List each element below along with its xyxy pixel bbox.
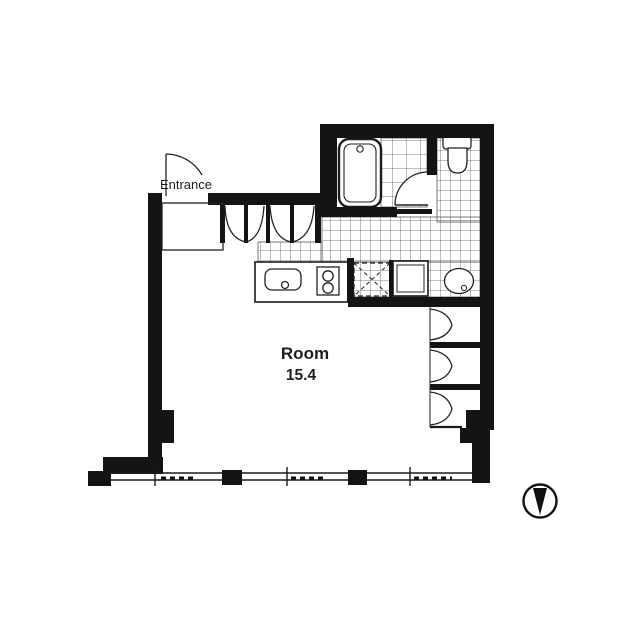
washer-divider-wall <box>389 260 393 298</box>
room-area-label: 15.4 <box>286 367 317 384</box>
floorplan-drawing: Entrance Room 15.4 <box>0 0 640 640</box>
closet-door-arc <box>430 350 452 382</box>
balcony-windows <box>110 467 472 486</box>
floorplan-canvas: Entrance Room 15.4 <box>0 0 640 640</box>
hallway-tile-floor <box>258 242 322 262</box>
west-wall-pillar <box>162 410 174 443</box>
closet-door-arc <box>246 206 264 242</box>
closet-door-arc <box>270 206 291 242</box>
closet-door-arc <box>430 309 452 340</box>
closet-door-arc <box>225 206 246 242</box>
wardrobe-closet <box>430 307 462 427</box>
toilet-bowl <box>448 148 467 173</box>
east-wall <box>480 124 494 430</box>
southeast-pillar <box>460 428 490 443</box>
window-mullion-wall <box>348 470 367 485</box>
north-wall <box>320 124 494 138</box>
southeast-wall <box>472 443 490 483</box>
washing-machine <box>393 261 428 296</box>
closet-door-arc <box>430 392 452 425</box>
hallway-closet-doors <box>220 205 321 243</box>
bathroom-door-sill <box>395 209 432 214</box>
compass-icon <box>524 485 557 518</box>
closet-door-arc <box>292 206 314 242</box>
southwest-wall <box>103 457 163 474</box>
compass-needle <box>533 488 547 515</box>
southwest-pillar <box>88 471 111 486</box>
bathroom-south-wall <box>320 207 397 217</box>
entrance-door-arc <box>166 154 202 175</box>
bathroom-west-wall <box>320 128 337 217</box>
hallway-north-wall <box>208 193 322 205</box>
closet-divider-wall <box>430 342 480 348</box>
washroom-south-wall <box>348 297 480 307</box>
bathtub-drain-icon <box>357 146 363 152</box>
bathtub <box>339 139 381 207</box>
west-wall <box>148 193 162 472</box>
southeast-pillar <box>466 410 482 428</box>
kitchen-tile-floor <box>322 217 480 262</box>
walls <box>88 124 494 486</box>
entrance-label: Entrance <box>160 177 212 192</box>
entrance-vestibule <box>162 203 223 250</box>
kitchen-counter <box>255 262 348 302</box>
wash-basin <box>445 269 474 294</box>
room-label: Room <box>281 344 329 363</box>
window-mullion-wall <box>222 470 242 485</box>
counter-divider-wall <box>347 258 354 302</box>
closet-divider-wall <box>430 384 480 390</box>
bath-toilet-divider-wall <box>427 138 437 175</box>
